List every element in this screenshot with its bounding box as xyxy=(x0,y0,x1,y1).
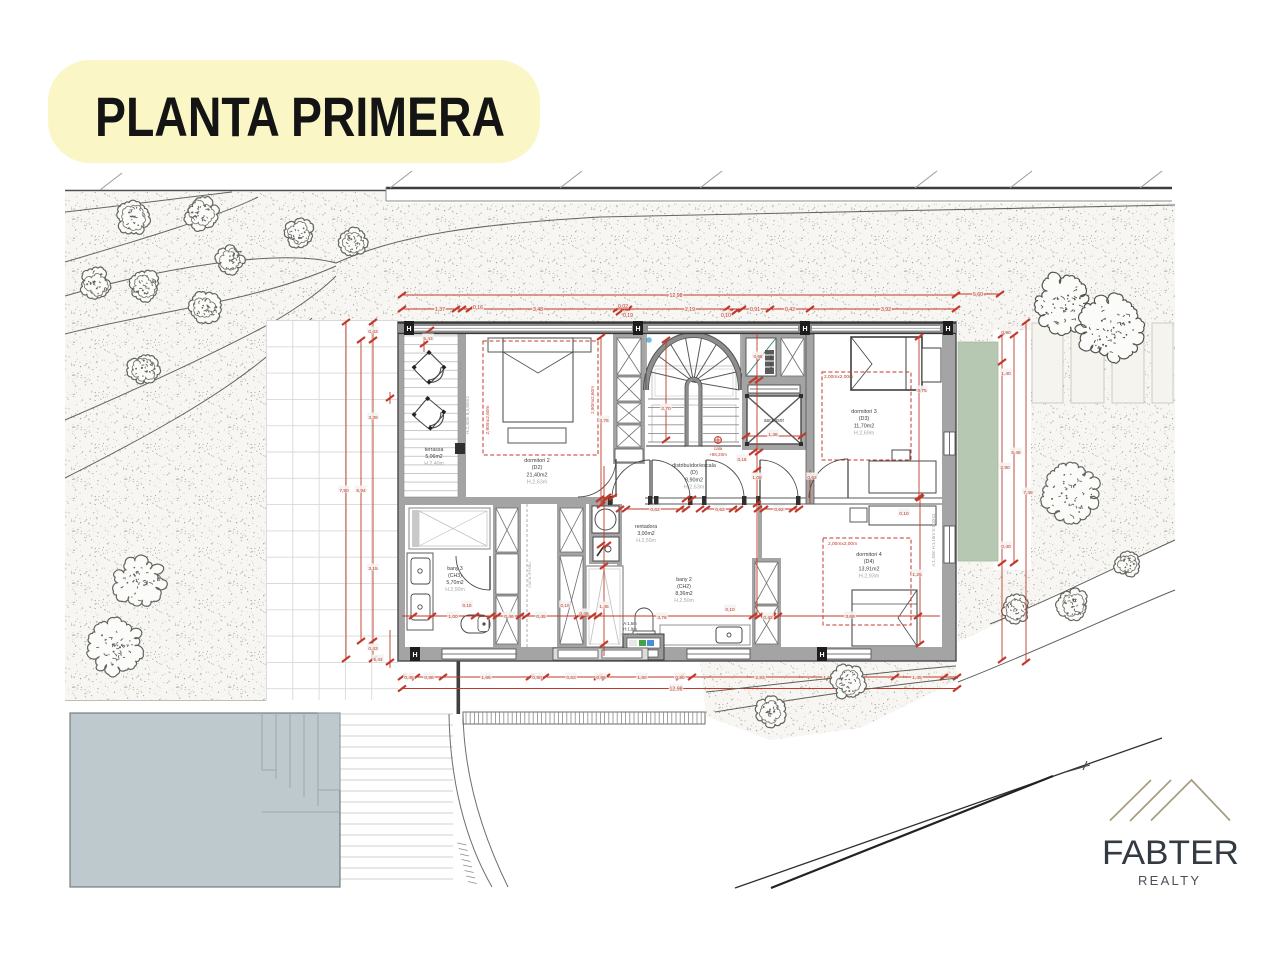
svg-text:H:1,9m: H:1,9m xyxy=(623,626,637,631)
svg-text:8,36m2: 8,36m2 xyxy=(675,591,692,597)
svg-text:cala: cala xyxy=(714,446,723,451)
svg-text:2,00mx2,00m: 2,00mx2,00m xyxy=(828,541,857,547)
svg-text:0,10: 0,10 xyxy=(725,607,735,613)
svg-text:0,42: 0,42 xyxy=(785,307,795,313)
svg-text:0,42: 0,42 xyxy=(763,615,773,621)
svg-text:rentadora: rentadora xyxy=(635,524,657,530)
svg-text:2,19: 2,19 xyxy=(685,307,695,313)
svg-text:2,90mx2,60m: 2,90mx2,60m xyxy=(590,386,595,414)
svg-text:0,16: 0,16 xyxy=(473,305,483,311)
svg-text:1,80: 1,80 xyxy=(637,675,647,681)
svg-text:H.2,50m: H.2,50m xyxy=(445,587,465,593)
svg-text:(D4): (D4) xyxy=(864,559,875,565)
svg-text:(D): (D) xyxy=(690,470,698,476)
svg-text:3,92: 3,92 xyxy=(881,307,891,313)
svg-text:H: H xyxy=(819,652,824,659)
svg-text:0,46: 0,46 xyxy=(579,611,589,617)
svg-text:5,46: 5,46 xyxy=(1011,450,1021,456)
svg-text:0,10: 0,10 xyxy=(899,511,909,517)
svg-text:bany 2: bany 2 xyxy=(676,577,692,583)
svg-text:0,80: 0,80 xyxy=(532,675,542,681)
svg-text:0,45: 0,45 xyxy=(404,675,414,681)
svg-text:0,63: 0,63 xyxy=(566,675,576,681)
svg-text:distribuïdor/escala: distribuïdor/escala xyxy=(672,463,716,469)
svg-text:7,48: 7,48 xyxy=(1023,490,1033,496)
svg-text:1,37: 1,37 xyxy=(435,307,445,313)
svg-text:H.2,63m: H.2,63m xyxy=(684,485,705,491)
svg-text:21,40m2: 21,40m2 xyxy=(527,472,548,478)
svg-text:5,70m2: 5,70m2 xyxy=(446,580,463,586)
svg-text:FABTER: FABTER xyxy=(1102,834,1239,872)
svg-text:H: H xyxy=(802,326,807,333)
svg-text:7,90: 7,90 xyxy=(339,488,349,494)
svg-text:2,90: 2,90 xyxy=(1000,465,1010,471)
svg-text:2,90mx2,60m: 2,90mx2,60m xyxy=(485,405,491,434)
svg-text:H.2,50m: H.2,50m xyxy=(636,538,656,544)
svg-text:0,10: 0,10 xyxy=(463,603,472,608)
svg-text:11,70m2: 11,70m2 xyxy=(854,423,875,429)
svg-text:0,02: 0,02 xyxy=(618,304,628,310)
svg-text:2,00mx2,00m: 2,00mx2,00m xyxy=(824,374,853,380)
svg-text:3,15: 3,15 xyxy=(368,566,378,572)
svg-text:3,00m2: 3,00m2 xyxy=(637,531,654,537)
svg-text:3,75: 3,75 xyxy=(917,388,927,394)
svg-text:0,46: 0,46 xyxy=(504,614,514,620)
svg-text:H: H xyxy=(412,652,417,659)
svg-text:0,90: 0,90 xyxy=(675,675,685,681)
svg-text:dormitori 3: dormitori 3 xyxy=(851,409,876,415)
svg-text:+98,20m: +98,20m xyxy=(709,452,727,457)
svg-text:0,91: 0,91 xyxy=(750,307,760,313)
svg-text:5,06m2: 5,06m2 xyxy=(425,454,442,460)
svg-text:H.2,50m: H.2,50m xyxy=(674,598,694,604)
svg-text:0,43: 0,43 xyxy=(368,329,378,335)
svg-text:0,62: 0,62 xyxy=(774,507,784,513)
svg-text:1,40: 1,40 xyxy=(1001,371,1011,377)
svg-text:1,45: 1,45 xyxy=(599,604,609,610)
svg-text:1,36: 1,36 xyxy=(768,432,778,438)
svg-text:bany 3: bany 3 xyxy=(447,566,463,572)
svg-text:2,70: 2,70 xyxy=(661,406,671,412)
svg-text:0,62: 0,62 xyxy=(807,475,817,481)
svg-text:1,08: 1,08 xyxy=(752,475,762,481)
svg-text:5,43: 5,43 xyxy=(374,657,383,662)
svg-text:H.2,63m: H.2,63m xyxy=(527,480,548,486)
svg-text:A:1,5m: A:1,5m xyxy=(623,621,637,626)
svg-text:3,76: 3,76 xyxy=(657,615,667,621)
svg-text:0,40: 0,40 xyxy=(1001,544,1011,550)
svg-text:H.2,40m: H.2,40m xyxy=(458,361,463,379)
svg-text:H: H xyxy=(945,326,950,333)
svg-text:8,90m2: 8,90m2 xyxy=(685,477,703,483)
svg-text:0,19: 0,19 xyxy=(623,313,633,319)
svg-text:A:1,10m H:1,10m S:1/10m2: A:1,10m H:1,10m S:1/10m2 xyxy=(931,513,936,567)
svg-text:0,88: 0,88 xyxy=(424,675,434,681)
svg-text:(D3): (D3) xyxy=(859,416,870,422)
svg-text:0,98: 0,98 xyxy=(754,354,763,359)
svg-text:1,00: 1,00 xyxy=(448,614,458,620)
svg-text:dormitori 2: dormitori 2 xyxy=(524,458,549,464)
svg-text:H: H xyxy=(635,326,640,333)
svg-text:cuina d'estiu​: cuina d'estiu​ xyxy=(527,562,532,588)
svg-text:1,65: 1,65 xyxy=(481,675,491,681)
svg-text:PLANTA PRIMERA: PLANTA PRIMERA xyxy=(95,85,505,148)
svg-text:H.2,69m: H.2,69m xyxy=(854,431,875,437)
svg-text:12,98: 12,98 xyxy=(670,686,683,692)
svg-text:0,10: 0,10 xyxy=(721,313,731,319)
svg-text:(D2): (D2) xyxy=(532,465,543,471)
svg-text:H: H xyxy=(406,326,411,333)
svg-text:2,83: 2,83 xyxy=(755,675,765,681)
svg-text:3,39: 3,39 xyxy=(368,415,378,421)
svg-text:3,75: 3,75 xyxy=(599,418,609,424)
svg-text:0,16: 0,16 xyxy=(738,457,747,462)
svg-text:6,94: 6,94 xyxy=(356,488,366,494)
svg-text:H.2,40m 9,4,55m2: H.2,40m 9,4,55m2 xyxy=(465,396,470,434)
svg-text:5,43: 5,43 xyxy=(423,336,433,342)
svg-text:(CH2): (CH2) xyxy=(677,584,691,590)
svg-text:1,45: 1,45 xyxy=(912,675,922,681)
svg-text:prev inst: prev inst xyxy=(769,355,773,369)
svg-text:12,98: 12,98 xyxy=(670,293,683,299)
svg-text:3,68: 3,68 xyxy=(845,614,855,620)
svg-text:S:1,80m2: S:1,80m2 xyxy=(621,632,640,637)
svg-text:terrassa: terrassa xyxy=(425,447,444,453)
svg-text:0,62: 0,62 xyxy=(650,507,660,513)
svg-text:H.2,93m: H.2,93m xyxy=(859,574,880,580)
svg-text:REALTY: REALTY xyxy=(1138,873,1204,888)
svg-text:(CH3): (CH3) xyxy=(448,573,462,579)
svg-text:0,90: 0,90 xyxy=(1001,330,1011,336)
svg-text:dormitori 4: dormitori 4 xyxy=(856,552,881,558)
svg-text:13,91m2: 13,91m2 xyxy=(859,566,880,572)
svg-text:0,62: 0,62 xyxy=(715,507,725,513)
svg-text:0,45: 0,45 xyxy=(536,614,546,620)
svg-text:3,48: 3,48 xyxy=(533,307,543,313)
svg-text:H.2,40m: H.2,40m xyxy=(424,461,444,467)
svg-text:ascensor: ascensor xyxy=(764,418,785,424)
svg-text:5,60: 5,60 xyxy=(973,292,983,298)
svg-text:1,25: 1,25 xyxy=(912,572,922,578)
svg-text:0,88: 0,88 xyxy=(596,675,606,681)
svg-text:0,43: 0,43 xyxy=(368,646,378,652)
svg-text:0,10: 0,10 xyxy=(561,603,570,608)
